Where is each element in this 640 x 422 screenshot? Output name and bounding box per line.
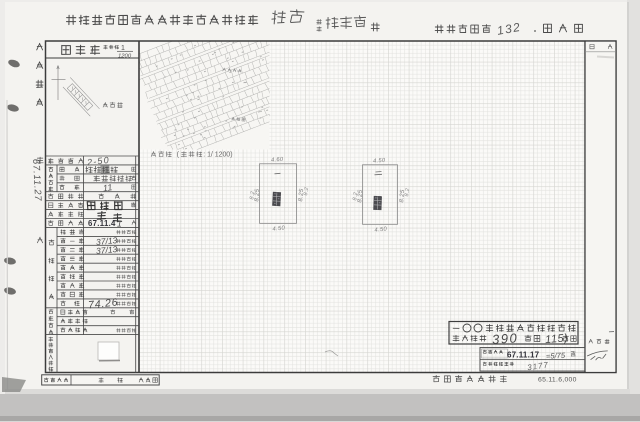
svg-text:8.2: 8.2 bbox=[303, 187, 310, 196]
svg-text:4.50: 4.50 bbox=[373, 158, 386, 165]
svg-text:390: 390 bbox=[492, 330, 519, 347]
svg-text:8.2: 8.2 bbox=[352, 192, 359, 201]
svg-text:8.2: 8.2 bbox=[249, 191, 256, 200]
svg-text:115): 115) bbox=[545, 332, 569, 346]
svg-text:4.50: 4.50 bbox=[272, 225, 285, 232]
svg-text:67.11.4: 67.11.4 bbox=[88, 219, 116, 228]
svg-text:1200: 1200 bbox=[118, 53, 132, 59]
svg-text:1: 1 bbox=[117, 218, 122, 228]
svg-text:): ) bbox=[230, 152, 232, 159]
svg-text:11: 11 bbox=[102, 182, 113, 193]
svg-text:67.11.17: 67.11.17 bbox=[507, 351, 540, 360]
svg-text:65.11.6,000: 65.11.6,000 bbox=[538, 377, 577, 384]
svg-text:67.11.27: 67.11.27 bbox=[30, 159, 43, 202]
svg-text:=5/75: =5/75 bbox=[546, 351, 566, 361]
svg-text:/: / bbox=[211, 152, 213, 159]
svg-text:37/13: 37/13 bbox=[96, 244, 118, 256]
svg-text:8.2: 8.2 bbox=[404, 188, 411, 197]
svg-text::: : bbox=[203, 152, 205, 159]
svg-text:4.50: 4.50 bbox=[374, 226, 387, 233]
svg-text:4.60: 4.60 bbox=[271, 157, 284, 164]
